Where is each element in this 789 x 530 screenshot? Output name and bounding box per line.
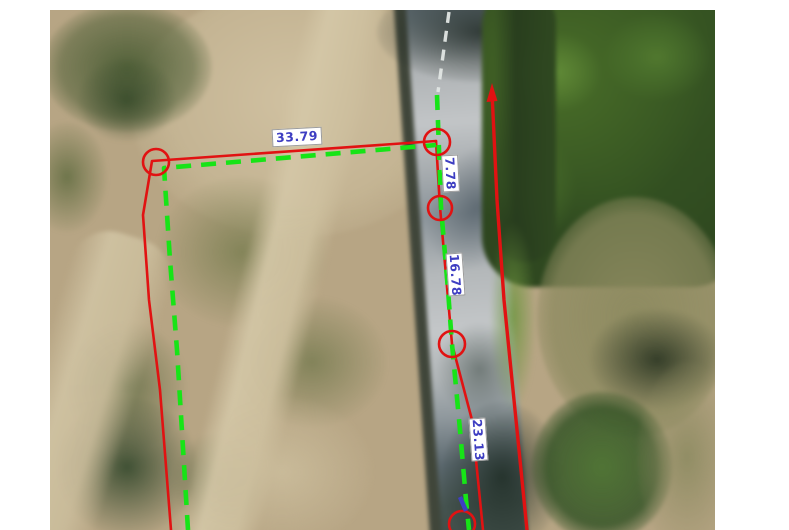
scrub-patch — [50, 122, 107, 232]
screenshot-root: 33.79 7.78 16.78 23.13 — [0, 0, 789, 530]
measurement-label: 33.79 — [272, 127, 323, 148]
measurement-label: 16.78 — [446, 252, 466, 296]
grass-patch — [490, 222, 536, 412]
aerial-photo — [50, 10, 715, 530]
measurement-label: 23.13 — [469, 417, 489, 461]
photo-texture-layers — [50, 10, 715, 530]
scrub-patch — [77, 57, 177, 142]
measurement-label: 7.78 — [441, 155, 460, 193]
tree-canopy — [602, 12, 712, 102]
tree-canopy — [494, 10, 556, 262]
